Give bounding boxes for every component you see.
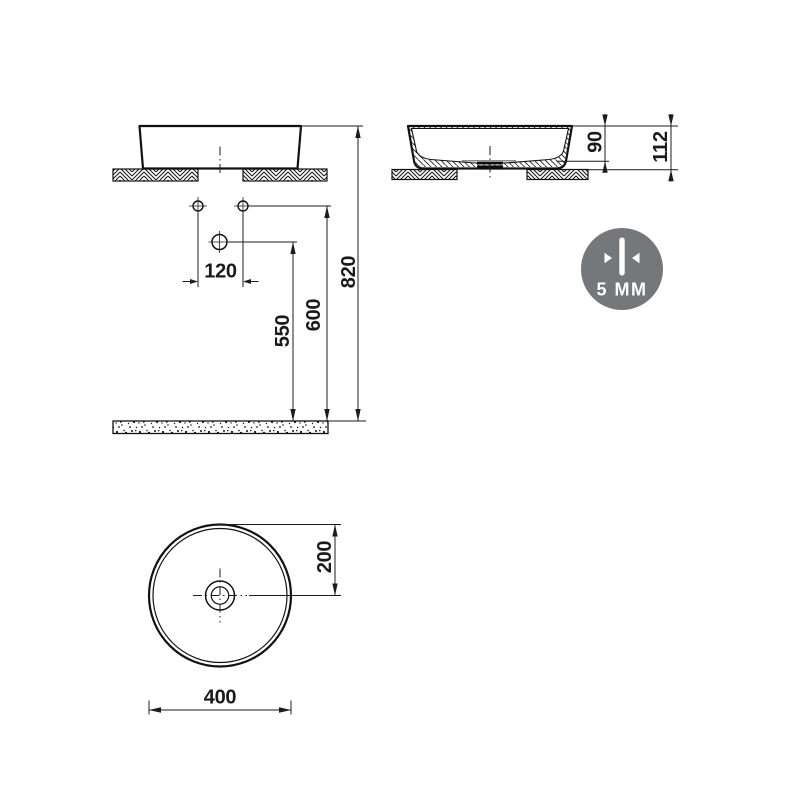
thickness-badge: 5 MM [581,228,663,310]
badge-label: 5 MM [597,280,648,300]
dimension-total-height: 112 [650,114,674,182]
dimension-drain-height: 550 [272,242,296,421]
countertop-section-right [243,169,327,181]
dim-112-label: 112 [650,131,672,163]
dim-120-label: 120 [204,261,237,283]
front-elevation-view: 120 550 600 820 [113,126,366,434]
countertop-section-left [113,169,198,181]
floor-section [113,421,328,434]
washbasin-dimension-drawing: 120 550 600 820 [0,0,800,800]
dimension-drain-offset: 200 [314,525,338,596]
dim-550-label: 550 [272,315,294,348]
side-section-view: 90 112 [392,114,678,182]
dimension-supply-height: 600 [303,206,330,421]
drain-hole [209,231,231,253]
dimension-diameter: 400 [149,687,291,715]
technical-drawing-page: 120 550 600 820 [0,0,800,800]
dim-90-label: 90 [585,131,607,153]
dim-200-label: 200 [314,541,336,574]
dim-600-label: 600 [303,299,325,332]
countertop-section-left [392,170,457,180]
top-plan-view: 200 400 [149,525,341,715]
dim-400-label: 400 [204,687,237,709]
dimension-bowl-depth: 90 [585,114,608,173]
dimension-rim-height: 820 [338,126,361,421]
countertop-section-right [527,170,588,180]
supply-hole-left [189,197,207,215]
dim-820-label: 820 [338,256,360,289]
